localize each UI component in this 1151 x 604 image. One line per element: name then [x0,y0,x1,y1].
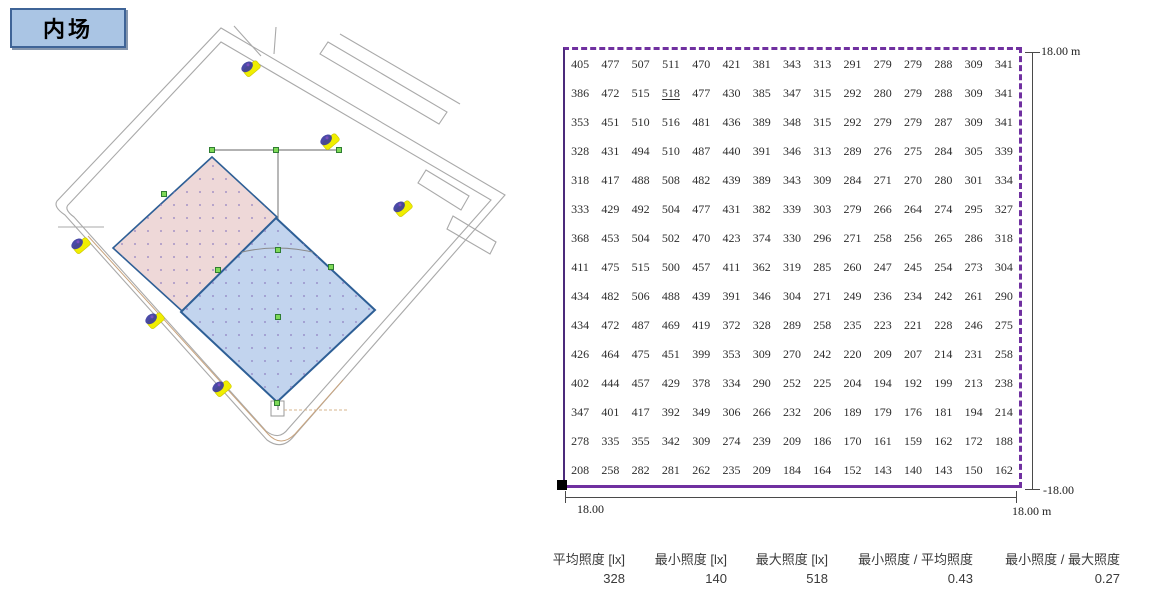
stat-max-illuminance: 最大照度 [lx] 518 [736,549,828,586]
grid-cell: 472 [595,311,625,340]
grid-cell: 510 [626,108,656,137]
grid-cell: 475 [595,253,625,282]
grid-cell: 309 [807,166,837,195]
horizontal-dimension-line [565,497,1017,498]
grid-cell: 258 [807,311,837,340]
grid-cell: 368 [565,224,595,253]
grid-cell: 440 [716,137,746,166]
stat-min-over-avg: 最小照度 / 平均照度 0.43 [843,549,973,586]
grid-cell: 382 [747,195,777,224]
grid-cell: 470 [686,50,716,79]
grid-cell: 431 [716,195,746,224]
grid-cell: 457 [626,369,656,398]
grid-cell: 279 [898,50,928,79]
grid-cell: 296 [807,224,837,253]
grid-cell: 429 [656,369,686,398]
grid-cell: 289 [837,137,867,166]
grid-cell: 492 [626,195,656,224]
grid-cell: 223 [868,311,898,340]
grid-cell: 213 [958,369,988,398]
grid-cell: 290 [747,369,777,398]
grid-cell: 419 [686,311,716,340]
grid-cell: 342 [656,427,686,456]
grid-cell: 264 [898,195,928,224]
grid-cell: 372 [716,311,746,340]
grid-cell: 502 [656,224,686,253]
stat-value: 0.27 [990,571,1120,586]
grid-cell: 511 [656,50,686,79]
grid-cell: 402 [565,369,595,398]
grid-cell: 249 [837,282,867,311]
grid-cell: 381 [747,50,777,79]
grid-cell: 347 [565,398,595,427]
grid-cell: 451 [656,340,686,369]
stat-value: 518 [736,571,828,586]
grid-cell: 451 [595,108,625,137]
grid-cell: 286 [958,224,988,253]
grid-cell: 386 [565,79,595,108]
grid-cell: 234 [898,282,928,311]
grid-cell: 258 [989,340,1019,369]
grid-cell: 179 [868,398,898,427]
grid-cell: 214 [928,340,958,369]
stat-value: 0.43 [843,571,973,586]
grid-cell: 309 [686,427,716,456]
handle-icon [274,148,279,153]
grid-cell: 401 [595,398,625,427]
stat-label: 最小照度 / 平均照度 [843,549,973,568]
dimension-label-bottom-right: 18.00 m [1012,504,1051,519]
grid-cell: 439 [686,282,716,311]
grid-cell: 231 [958,340,988,369]
grid-cell: 315 [807,108,837,137]
grid-cell: 470 [686,224,716,253]
grid-cell: 279 [898,108,928,137]
handle-icon [216,268,221,273]
grid-cell: 313 [807,137,837,166]
grid-cell: 247 [868,253,898,282]
grid-cell: 347 [777,79,807,108]
grid-cell: 518 [656,79,686,108]
parcel-line-top-right [340,34,460,104]
street-stub-top [234,26,276,56]
statistics-row: 平均照度 [lx] 328 最小照度 [lx] 140 最大照度 [lx] 51… [0,549,1151,594]
horizontal-dimension-tick-right [1016,491,1017,503]
grid-cell: 313 [807,50,837,79]
grid-cell: 220 [837,340,867,369]
site-plan [28,20,520,492]
grid-cell: 333 [565,195,595,224]
grid-cell: 334 [989,166,1019,195]
grid-cell: 348 [777,108,807,137]
grid-cell: 434 [565,282,595,311]
grid-cell: 315 [807,79,837,108]
grid-cell: 429 [595,195,625,224]
grid-cell: 349 [686,398,716,427]
grid-cell: 232 [777,398,807,427]
grid-cell: 266 [747,398,777,427]
grid-cell: 469 [656,311,686,340]
grid-cell: 282 [626,456,656,485]
grid-cell: 334 [716,369,746,398]
dimension-label-right-bottom: -18.00 [1043,483,1074,498]
grid-cell: 208 [565,456,595,485]
grid-cell: 341 [989,79,1019,108]
grid-cell: 436 [716,108,746,137]
grid-cell: 417 [595,166,625,195]
grid-cell: 335 [595,427,625,456]
grid-cell: 508 [656,166,686,195]
grid-cell: 423 [716,224,746,253]
grid-cell: 341 [989,50,1019,79]
stat-label: 最小照度 [lx] [635,549,727,568]
grid-cell: 389 [747,166,777,195]
grid-cell: 392 [656,398,686,427]
grid-cell: 209 [777,427,807,456]
grid-cell: 378 [686,369,716,398]
grid-cell: 399 [686,340,716,369]
grid-cell: 481 [686,108,716,137]
grid-cell: 258 [595,456,625,485]
grid-cell: 214 [989,398,1019,427]
stat-label: 平均照度 [lx] [533,549,625,568]
handle-icon [210,148,215,153]
grid-cell: 279 [868,50,898,79]
vertical-dimension-tick-bottom [1025,489,1040,490]
grid-cell: 256 [898,224,928,253]
grid-cell: 426 [565,340,595,369]
grid-cell: 301 [958,166,988,195]
grid-cell: 292 [837,108,867,137]
grid-cell: 280 [868,79,898,108]
grid-cell: 389 [747,108,777,137]
grid-cell: 487 [626,311,656,340]
grid-cell: 309 [958,50,988,79]
grid-cell: 209 [868,340,898,369]
grid-cell: 453 [595,224,625,253]
grid-cell: 206 [807,398,837,427]
lux-grid: 4054775075114704213813433132912792792883… [565,50,1019,485]
grid-cell: 504 [656,195,686,224]
grid-cell: 281 [656,456,686,485]
grid-cell: 192 [898,369,928,398]
grid-cell: 288 [928,50,958,79]
grid-cell: 421 [716,50,746,79]
grid-cell: 260 [837,253,867,282]
grid-cell: 161 [868,427,898,456]
grid-cell: 279 [898,79,928,108]
grid-cell: 464 [595,340,625,369]
grid-cell: 504 [626,224,656,253]
grid-cell: 152 [837,456,867,485]
grid-cell: 346 [777,137,807,166]
grid-cell: 295 [958,195,988,224]
grid-cell: 279 [868,108,898,137]
grid-cell: 140 [898,456,928,485]
grid-cell: 411 [565,253,595,282]
grid-cell: 306 [716,398,746,427]
grid-cell: 271 [868,166,898,195]
grid-cell: 411 [716,253,746,282]
vertical-dimension-tick-top [1025,52,1040,53]
grid-cell: 494 [626,137,656,166]
grid-cell: 362 [747,253,777,282]
grid-cell: 284 [928,137,958,166]
handle-icon [329,265,334,270]
grid-cell: 303 [807,195,837,224]
grid-cell: 353 [565,108,595,137]
grid-cell: 431 [595,137,625,166]
grid-cell: 221 [898,311,928,340]
grid-cell: 265 [928,224,958,253]
grid-cell: 228 [928,311,958,340]
grid-origin-marker [557,480,567,490]
grid-cell: 385 [747,79,777,108]
grid-cell: 143 [928,456,958,485]
stat-label: 最大照度 [lx] [736,549,828,568]
grid-cell: 391 [747,137,777,166]
grid-cell: 209 [747,456,777,485]
grid-cell: 319 [777,253,807,282]
grid-cell: 176 [898,398,928,427]
grid-cell: 434 [565,311,595,340]
grid-cell: 287 [928,108,958,137]
grid-cell: 328 [565,137,595,166]
horizontal-dimension-tick-left [565,491,566,503]
grid-cell: 274 [716,427,746,456]
grid-cell: 482 [595,282,625,311]
grid-cell: 246 [958,311,988,340]
grid-cell: 515 [626,79,656,108]
grid-cell: 194 [868,369,898,398]
luminaire-icon [143,308,165,330]
grid-cell: 164 [807,456,837,485]
grid-cell: 488 [626,166,656,195]
stat-min-illuminance: 最小照度 [lx] 140 [635,549,727,586]
grid-cell: 477 [686,79,716,108]
grid-cell: 475 [626,340,656,369]
grid-cell: 417 [626,398,656,427]
grid-cell: 186 [807,427,837,456]
grid-cell: 507 [626,50,656,79]
grid-cell: 258 [868,224,898,253]
grid-cell: 143 [868,456,898,485]
grid-cell: 318 [565,166,595,195]
parcel-right-1 [418,170,469,210]
grid-cell: 355 [626,427,656,456]
grid-cell: 254 [928,253,958,282]
grid-cell: 477 [595,50,625,79]
grid-cell: 235 [837,311,867,340]
dimension-label-right-top: 18.00 m [1041,44,1080,59]
grid-cell: 292 [837,79,867,108]
grid-cell: 330 [777,224,807,253]
stat-average-illuminance: 平均照度 [lx] 328 [533,549,625,586]
handle-icon [337,148,342,153]
grid-cell: 162 [989,456,1019,485]
grid-cell: 309 [958,79,988,108]
grid-cell: 506 [626,282,656,311]
grid-cell: 172 [958,427,988,456]
grid-cell: 236 [868,282,898,311]
grid-cell: 274 [928,195,958,224]
grid-cell: 162 [928,427,958,456]
grid-cell: 275 [898,137,928,166]
grid-cell: 318 [989,224,1019,253]
grid-cell: 239 [747,427,777,456]
grid-cell: 500 [656,253,686,282]
grid-cell: 273 [958,253,988,282]
grid-cell: 194 [958,398,988,427]
grid-cell: 270 [898,166,928,195]
grid-cell: 487 [686,137,716,166]
grid-cell: 285 [807,253,837,282]
grid-cell: 266 [868,195,898,224]
grid-cell: 515 [626,253,656,282]
grid-cell: 207 [898,340,928,369]
grid-cell: 271 [837,224,867,253]
grid-cell: 288 [928,79,958,108]
grid-cell: 252 [777,369,807,398]
grid-cell: 304 [989,253,1019,282]
grid-cell: 477 [686,195,716,224]
handle-icon [276,315,281,320]
grid-cell: 343 [777,166,807,195]
grid-cell: 353 [716,340,746,369]
grid-cell: 339 [777,195,807,224]
stat-value: 328 [533,571,625,586]
grid-cell: 472 [595,79,625,108]
luminaire-icon [210,376,232,398]
grid-cell: 328 [747,311,777,340]
grid-cell: 482 [686,166,716,195]
grid-cell: 245 [898,253,928,282]
vertical-dimension-line [1032,52,1033,490]
grid-cell: 305 [958,137,988,166]
grid-cell: 235 [716,456,746,485]
stat-min-over-max: 最小照度 / 最大照度 0.27 [990,549,1120,586]
handle-icon [275,401,280,406]
grid-cell: 280 [928,166,958,195]
grid-cell: 170 [837,427,867,456]
grid-cell: 184 [777,456,807,485]
grid-cell: 271 [807,282,837,311]
stat-label: 最小照度 / 最大照度 [990,549,1120,568]
grid-cell: 238 [989,369,1019,398]
grid-cell: 343 [777,50,807,79]
grid-cell: 242 [807,340,837,369]
grid-cell: 391 [716,282,746,311]
grid-cell: 327 [989,195,1019,224]
grid-cell: 225 [807,369,837,398]
grid-cell: 276 [868,137,898,166]
report-page: 内场 [0,0,1151,604]
illuminance-grid-panel: 4054775075114704213813433132912792792883… [563,47,1022,488]
grid-cell: 290 [989,282,1019,311]
stat-value: 140 [635,571,727,586]
grid-cell: 430 [716,79,746,108]
grid-cell: 510 [656,137,686,166]
grid-cell: 181 [928,398,958,427]
grid-cell: 444 [595,369,625,398]
grid-cell: 279 [837,195,867,224]
grid-cell: 204 [837,369,867,398]
grid-cell: 278 [565,427,595,456]
grid-cell: 189 [837,398,867,427]
grid-cell: 457 [686,253,716,282]
grid-cell: 291 [837,50,867,79]
grid-cell: 516 [656,108,686,137]
grid-cell: 339 [989,137,1019,166]
luminaire-icon [391,196,413,218]
grid-cell: 242 [928,282,958,311]
grid-cell: 309 [747,340,777,369]
grid-cell: 309 [958,108,988,137]
grid-cell: 374 [747,224,777,253]
grid-cell: 405 [565,50,595,79]
grid-cell: 150 [958,456,988,485]
grid-cell: 346 [747,282,777,311]
grid-cell: 284 [837,166,867,195]
grid-cell: 270 [777,340,807,369]
grid-cell: 304 [777,282,807,311]
grid-cell: 199 [928,369,958,398]
grid-cell: 289 [777,311,807,340]
grid-cell: 488 [656,282,686,311]
grid-cell: 275 [989,311,1019,340]
grid-cell: 341 [989,108,1019,137]
dimension-label-bottom-left: 18.00 [577,502,604,517]
handle-icon [162,192,167,197]
grid-cell: 159 [898,427,928,456]
handle-icon [276,248,281,253]
grid-cell: 188 [989,427,1019,456]
grid-cell: 262 [686,456,716,485]
grid-cell: 261 [958,282,988,311]
grid-cell: 439 [716,166,746,195]
